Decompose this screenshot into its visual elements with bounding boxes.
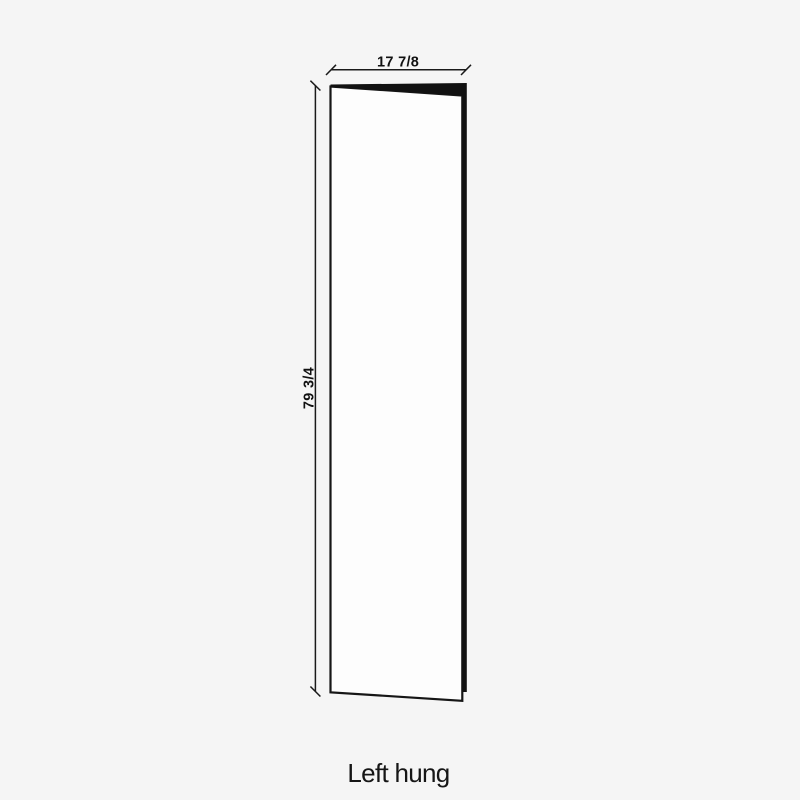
- svg-text:17 7/8: 17 7/8: [377, 55, 419, 71]
- svg-text:79 3/4: 79 3/4: [302, 367, 318, 409]
- svg-text:Left hung: Left hung: [347, 758, 449, 788]
